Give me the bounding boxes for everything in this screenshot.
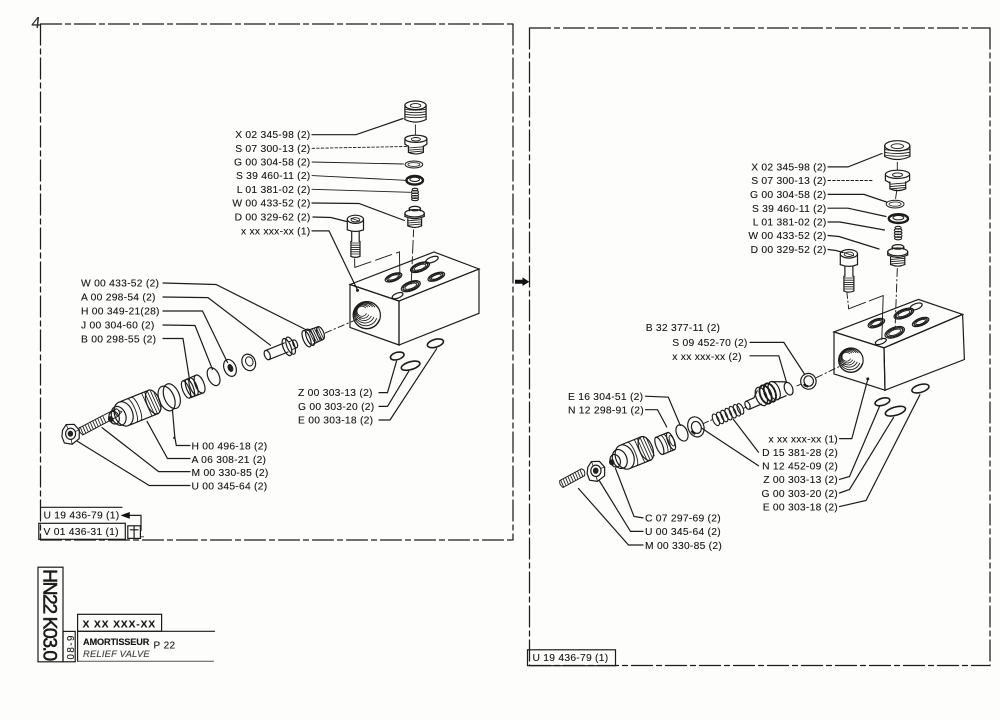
svg-text:E 16 304-51 (2): E 16 304-51 (2) [568, 392, 643, 403]
svg-text:U 19 436-79 (1): U 19 436-79 (1) [44, 511, 120, 522]
svg-text:x xx xxx-xx (1): x xx xxx-xx (1) [241, 226, 311, 237]
svg-text:C 07 297-69 (2): C 07 297-69 (2) [645, 514, 721, 525]
svg-text:S 09 452-70 (2): S 09 452-70 (2) [672, 338, 747, 349]
svg-text:H 00 496-18 (2): H 00 496-18 (2) [192, 441, 268, 452]
svg-text:M 00 330-85 (2): M 00 330-85 (2) [645, 541, 722, 552]
svg-text:G 00 303-20 (2): G 00 303-20 (2) [298, 402, 374, 413]
svg-text:Z 00 303-13 (2): Z 00 303-13 (2) [298, 388, 373, 399]
svg-text:P 22: P 22 [154, 641, 176, 652]
svg-text:HN22 K03.0: HN22 K03.0 [39, 569, 61, 661]
svg-text:B 00 298-55 (2): B 00 298-55 (2) [81, 335, 156, 346]
svg-text:L 01 381-02 (2): L 01 381-02 (2) [753, 218, 827, 229]
svg-text:RELIEF VALVE: RELIEF VALVE [83, 648, 150, 659]
svg-text:W 00 433-52 (2): W 00 433-52 (2) [748, 231, 826, 242]
svg-text:AMORTISSEUR: AMORTISSEUR [83, 637, 150, 647]
svg-text:U 19 436-79 (1): U 19 436-79 (1) [533, 653, 609, 664]
svg-text:A 06 308-21 (2): A 06 308-21 (2) [192, 455, 267, 466]
svg-text:B 32 377-11 (2): B 32 377-11 (2) [646, 323, 721, 334]
svg-text:J 00 304-60 (2): J 00 304-60 (2) [81, 321, 155, 332]
svg-text:D 00 329-52 (2): D 00 329-52 (2) [751, 245, 827, 256]
svg-text:S 39 460-11 (2): S 39 460-11 (2) [236, 171, 311, 182]
svg-text:S 07 300-13 (2): S 07 300-13 (2) [751, 176, 826, 187]
svg-text:D 15 381-28 (2): D 15 381-28 (2) [762, 448, 838, 459]
svg-text:G 00 304-58 (2): G 00 304-58 (2) [750, 190, 826, 201]
svg-text:S 39 460-11 (2): S 39 460-11 (2) [752, 204, 827, 215]
svg-text:Z 00 303-13 (2): Z 00 303-13 (2) [763, 475, 838, 486]
svg-text:x xx xxx-xx (2): x xx xxx-xx (2) [672, 352, 742, 363]
svg-text:A 00 298-54 (2): A 00 298-54 (2) [81, 293, 156, 304]
svg-text:S 07 300-13 (2): S 07 300-13 (2) [235, 144, 310, 155]
svg-text:08-9: 08-9 [66, 636, 77, 660]
svg-text:W 00 433-52 (2): W 00 433-52 (2) [232, 199, 310, 210]
svg-text:E 00 303-18 (2): E 00 303-18 (2) [763, 502, 838, 513]
svg-text:W 00 433-52 (2): W 00 433-52 (2) [81, 279, 159, 290]
svg-text:G 00 303-20 (2): G 00 303-20 (2) [762, 489, 838, 500]
svg-text:H 00 349-21(28): H 00 349-21(28) [81, 307, 160, 318]
svg-text:M 00 330-85 (2): M 00 330-85 (2) [192, 468, 269, 479]
svg-text:x xx xxx-xx (1): x xx xxx-xx (1) [768, 434, 838, 445]
svg-text:U 00 345-64 (2): U 00 345-64 (2) [192, 481, 268, 492]
svg-text:U 00 345-64 (2): U 00 345-64 (2) [645, 527, 721, 538]
svg-text:X XX XXX-XX: X XX XXX-XX [83, 620, 156, 631]
svg-text:G 00 304-58 (2): G 00 304-58 (2) [234, 158, 310, 169]
svg-text:N 12 452-09 (2): N 12 452-09 (2) [762, 462, 838, 473]
svg-text:D 00 329-62 (2): D 00 329-62 (2) [235, 213, 311, 224]
svg-text:N 12 298-91 (2): N 12 298-91 (2) [568, 406, 644, 417]
svg-text:X 02 345-98 (2): X 02 345-98 (2) [751, 163, 826, 174]
svg-text:E 00 303-18 (2): E 00 303-18 (2) [298, 416, 373, 427]
svg-text:L 01 381-02 (2): L 01 381-02 (2) [237, 185, 311, 196]
svg-text:X 02 345-98 (2): X 02 345-98 (2) [235, 130, 310, 141]
svg-text:V 01 436-31 (1): V 01 436-31 (1) [44, 527, 119, 538]
svg-text:4: 4 [31, 14, 42, 32]
